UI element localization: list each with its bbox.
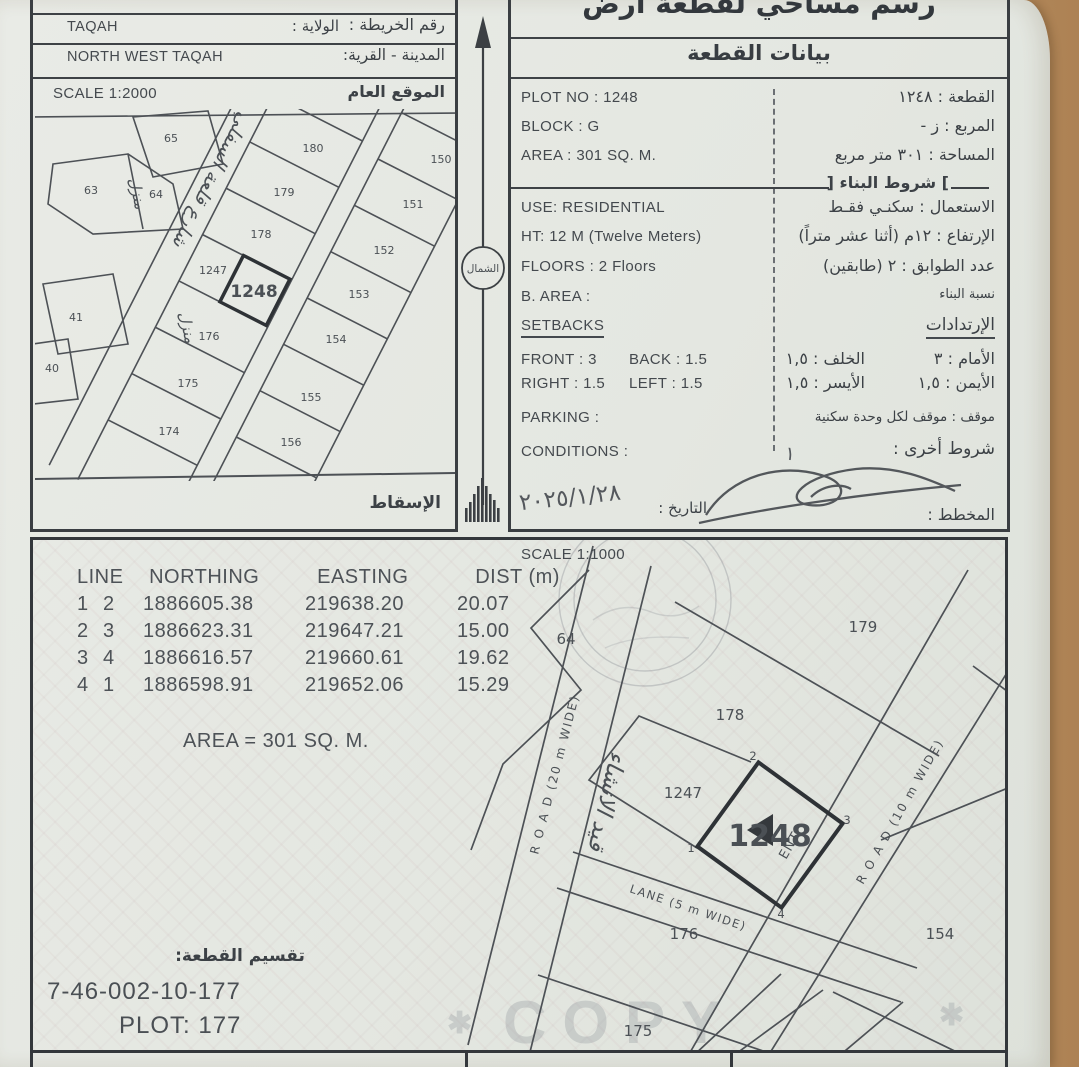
cell: 1886623.31	[143, 620, 305, 643]
cell: 219652.06	[305, 674, 457, 697]
detail-plan-box: COPY ✱ ✱ SCALE 1:1000 LINE NORTHING EAST…	[30, 537, 1008, 1053]
cell: 4	[77, 674, 103, 697]
bottom-row-divider	[30, 1053, 33, 1067]
map-plot-155: 155	[301, 391, 322, 404]
cell: 1	[77, 593, 103, 616]
map-plot-1247: 1247	[199, 264, 227, 277]
table-row: 231886623.31219647.2115.00	[77, 620, 565, 647]
map-plot-64: 64	[149, 188, 163, 201]
col-easting: EASTING	[317, 566, 469, 589]
general-location-label: الموقع العام	[348, 82, 445, 101]
coordinate-header-row: LINE NORTHING EASTING DIST (m)	[77, 566, 565, 593]
subdivision-code: 7-46-002-10-177	[47, 978, 241, 1006]
table-row: 411886598.91219652.0615.29	[77, 674, 565, 701]
scanned-survey-photo: { "top_left": { "map_no_label": "رقم الخ…	[0, 0, 1079, 1067]
location-panel: TAQAH الولاية : رقم الخريطة : NORTH WEST…	[30, 0, 458, 532]
front-ar: الأمام : ٣	[934, 349, 995, 368]
col-line: LINE	[77, 566, 143, 589]
map-scale-label: SCALE 1:2000	[53, 85, 157, 102]
plot-no-ar: القطعة : ١٢٤٨	[898, 87, 995, 106]
north-arrowhead-icon	[475, 16, 491, 48]
map-plot-178: 178	[251, 228, 272, 241]
map-number-label: رقم الخريطة :	[349, 15, 445, 34]
map-plot-154: 154	[326, 333, 347, 346]
floors-en: FLOORS : 2 Floors	[521, 258, 656, 275]
plan-plot-1247: 1247	[664, 784, 702, 802]
front-en: FRONT : 3	[521, 351, 597, 368]
survey-sheet: TAQAH الولاية : رقم الخريطة : NORTH WEST…	[0, 0, 1050, 1067]
road-right-label: R O A D (10 m WIDE)	[853, 736, 946, 886]
map-plot-152: 152	[374, 244, 395, 257]
cell: 20.07	[457, 593, 541, 616]
divider	[511, 77, 1007, 79]
area-en: AREA : 301 SQ. M.	[521, 147, 656, 164]
map-plot-40: 40	[45, 362, 59, 375]
house-handwriting-1: منزل	[125, 176, 149, 211]
back-ar: الخلف : ١,٥	[786, 349, 865, 368]
divider	[511, 37, 1007, 39]
right-ar: الأيمن : ١,٥	[918, 373, 995, 392]
coordinate-table: LINE NORTHING EASTING DIST (m) 121886605…	[77, 566, 565, 701]
built-ratio-ar: نسبة البناء	[939, 287, 995, 302]
bottom-row-divider	[1005, 1053, 1008, 1067]
bottom-row-divider	[730, 1053, 733, 1067]
corner-1: 1	[687, 841, 694, 855]
map-plot-156: 156	[281, 436, 302, 449]
cell: 19.62	[457, 647, 541, 670]
area-total: AREA = 301 SQ. M.	[183, 730, 369, 753]
floors-ar: عدد الطوابق : ٢ (طابقين)	[823, 256, 995, 275]
table-row: 121886605.38219638.2020.07	[77, 593, 565, 620]
section-title: بيانات القطعة	[511, 41, 1007, 65]
col-northing: NORTHING	[149, 566, 311, 589]
map-plot-65: 65	[164, 132, 178, 145]
wilaya-label: الولاية :	[292, 17, 339, 35]
map-plot-41: 41	[69, 311, 83, 324]
north-label: الشمال	[467, 263, 499, 275]
cell: 4	[103, 647, 143, 670]
bottom-row-divider	[465, 1053, 468, 1067]
plan-plot-154: 154	[926, 925, 955, 943]
cell: 219647.21	[305, 620, 457, 643]
built-area-en: B. AREA :	[521, 288, 590, 305]
parking-en: PARKING :	[521, 409, 599, 426]
height-en: HT: 12 M (Twelve Meters)	[521, 228, 701, 245]
left-en: LEFT : 1.5	[629, 375, 703, 392]
building-rules-label: شروط البناء	[840, 173, 937, 192]
map-plot-150: 150	[431, 153, 452, 166]
map-plot-63: 63	[84, 184, 98, 197]
block-en: BLOCK : G	[521, 118, 600, 135]
cell: 1886598.91	[143, 674, 305, 697]
divider	[33, 43, 455, 45]
signature	[691, 445, 971, 530]
right-en: RIGHT : 1.5	[521, 375, 605, 392]
plan-plot-175: 175	[624, 1022, 653, 1040]
setbacks-ar: الإرتدادات	[926, 315, 995, 339]
plan-scale-label: SCALE 1:1000	[521, 546, 625, 563]
use-en: USE: RESIDENTIAL	[521, 199, 665, 216]
dashed-divider	[773, 89, 775, 451]
setbacks-en: SETBACKS	[521, 317, 604, 338]
cell: 3	[77, 647, 103, 670]
conditions-en: CONDITIONS :	[521, 443, 628, 460]
cell: 1	[103, 674, 143, 697]
map-plot-180: 180	[303, 142, 324, 155]
corner-4: 4	[777, 907, 784, 921]
north-arrow: الشمال	[458, 0, 508, 535]
cell: 2	[103, 593, 143, 616]
cell: 1886616.57	[143, 647, 305, 670]
height-ar: الإرتفاع : ١٢م (أثنا عشر متراً)	[798, 226, 995, 245]
corner-2: 2	[749, 749, 756, 763]
cell: 2	[77, 620, 103, 643]
wilaya-value: TAQAH	[67, 19, 118, 35]
subdivision-label: تقسيم القطعة:	[145, 946, 335, 966]
map-plot-151: 151	[403, 198, 424, 211]
town-value: NORTH WEST TAQAH	[67, 49, 223, 65]
use-ar: الاستعمال : سكنـي فقـط	[828, 197, 995, 216]
cell: 219660.61	[305, 647, 457, 670]
plan-plot-1248: 1248	[728, 819, 812, 854]
location-map: 65 63 64 41 40 180 179 178 1247 1248 176…	[33, 109, 457, 521]
cell: 1886605.38	[143, 593, 305, 616]
subdivision-plot: PLOT: 177	[119, 1012, 241, 1040]
plan-plot-178: 178	[716, 706, 745, 724]
street-handwriting: شارع قلعة السفلي	[167, 109, 255, 252]
left-ar: الأيسر : ١,٥	[786, 373, 865, 392]
cell: 15.29	[457, 674, 541, 697]
map-plot-179: 179	[274, 186, 295, 199]
town-label: المدينة - القرية:	[343, 46, 445, 64]
document-title: رسم مساحي لقطعة أرض	[511, 0, 1007, 20]
table-row: 341886616.57219660.6119.62	[77, 647, 565, 674]
hatch-bars-icon	[465, 478, 500, 522]
divider	[33, 77, 455, 79]
cell: 15.00	[457, 620, 541, 643]
block-ar: المربع : ز -	[920, 116, 995, 135]
corner-3: 3	[843, 813, 850, 827]
back-en: BACK : 1.5	[629, 351, 707, 368]
cell: 219638.20	[305, 593, 457, 616]
map-plot-1248: 1248	[230, 282, 277, 302]
parking-ar: موقف : موقف لكل وحدة سكنية	[815, 409, 995, 425]
map-plot-174: 174	[159, 425, 180, 438]
plot-no-en: PLOT NO : 1248	[521, 89, 638, 106]
cell: 3	[103, 620, 143, 643]
plan-plot-179: 179	[849, 618, 878, 636]
plot-data-panel: رسم مساحي لقطعة أرض بيانات القطعة PLOT N…	[508, 0, 1010, 532]
map-plot-176: 176	[199, 330, 220, 343]
date-handwritten: ٢٠٢٥/١/٢٨	[518, 480, 622, 517]
map-plot-153: 153	[349, 288, 370, 301]
map-plot-175: 175	[178, 377, 199, 390]
area-ar: المساحة : ٣٠١ متر مربع	[835, 145, 995, 164]
projection-label: الإسقاط	[370, 493, 441, 513]
col-dist: DIST (m)	[475, 566, 565, 589]
plan-plot-176: 176	[670, 925, 699, 943]
